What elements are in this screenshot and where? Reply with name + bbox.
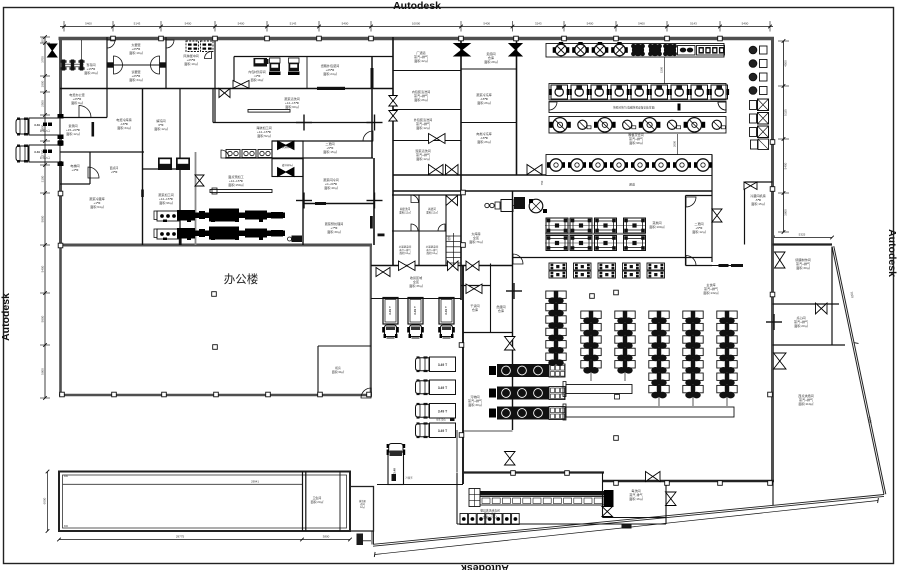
svg-text:5325: 5325 bbox=[799, 233, 806, 237]
svg-text:5800: 5800 bbox=[41, 315, 45, 322]
svg-text:29941: 29941 bbox=[251, 480, 259, 484]
svg-text:面积:26㎡: 面积:26㎡ bbox=[477, 100, 491, 105]
svg-text:面积:29㎡: 面积:29㎡ bbox=[84, 70, 98, 75]
svg-text:冷藏车: 冷藏车 bbox=[406, 476, 414, 480]
svg-text:1800: 1800 bbox=[41, 80, 45, 87]
svg-text:面积:20㎡: 面积:20㎡ bbox=[794, 323, 808, 328]
svg-text:3.49 T: 3.49 T bbox=[388, 306, 392, 315]
svg-text:面积:12㎡: 面积:12㎡ bbox=[66, 131, 80, 136]
svg-text:3700: 3700 bbox=[41, 56, 45, 63]
svg-text:面积:100㎡: 面积:100㎡ bbox=[649, 224, 665, 229]
svg-text:5400: 5400 bbox=[238, 22, 245, 26]
svg-text:5400: 5400 bbox=[638, 22, 645, 26]
svg-text:300: 300 bbox=[64, 525, 69, 528]
svg-text:面积:30㎡: 面积:30㎡ bbox=[468, 402, 482, 407]
svg-text:5400: 5400 bbox=[587, 22, 594, 26]
svg-text:5143: 5143 bbox=[690, 22, 697, 26]
svg-text:面积:12㎡: 面积:12㎡ bbox=[400, 251, 411, 255]
svg-text:通道: 通道 bbox=[629, 182, 635, 187]
svg-text:面积:26㎡: 面积:26㎡ bbox=[414, 97, 428, 102]
svg-text:面积:26㎡: 面积:26㎡ bbox=[477, 139, 491, 144]
svg-text:仓库: 仓库 bbox=[472, 307, 478, 312]
svg-text:+4℃: +4℃ bbox=[71, 168, 79, 172]
svg-text:面积:12㎡: 面积:12㎡ bbox=[154, 126, 168, 131]
svg-text:3900: 3900 bbox=[784, 209, 788, 216]
svg-text:3800: 3800 bbox=[323, 535, 330, 539]
svg-text:面积:15㎡: 面积:15㎡ bbox=[323, 149, 337, 154]
svg-text:面积:23㎡: 面积:23㎡ bbox=[311, 499, 324, 504]
svg-text:面积:30㎡: 面积:30㎡ bbox=[327, 229, 341, 234]
svg-text:面积:12㎡: 面积:12㎡ bbox=[426, 211, 438, 215]
svg-text:5400: 5400 bbox=[742, 22, 749, 26]
svg-text:两更洗间: 两更洗间 bbox=[400, 207, 411, 211]
svg-text:两更间: 两更间 bbox=[428, 207, 436, 211]
svg-text:5400: 5400 bbox=[784, 162, 788, 169]
svg-text:5400: 5400 bbox=[342, 22, 349, 26]
svg-text:面积:98㎡: 面积:98㎡ bbox=[629, 140, 643, 145]
svg-text:1500: 1500 bbox=[660, 67, 664, 73]
svg-text:面积:12㎡: 面积:12㎡ bbox=[692, 229, 706, 234]
svg-text:3.49 T: 3.49 T bbox=[438, 363, 447, 367]
svg-text:Autodesk: Autodesk bbox=[886, 229, 898, 277]
svg-text:卸货入口: 卸货入口 bbox=[40, 129, 51, 133]
svg-text:5400: 5400 bbox=[85, 22, 92, 26]
svg-text:3100: 3100 bbox=[41, 175, 45, 182]
svg-text:蒸煮间蒸汽(电磁蒸煮设备安装位置): 蒸煮间蒸汽(电磁蒸煮设备安装位置) bbox=[613, 105, 655, 109]
svg-text:5143: 5143 bbox=[134, 22, 141, 26]
svg-text:5325: 5325 bbox=[784, 109, 788, 116]
svg-text:3.49: 3.49 bbox=[34, 123, 40, 127]
svg-text:面积:110㎡: 面积:110㎡ bbox=[798, 401, 814, 406]
svg-text:面积:34㎡: 面积:34㎡ bbox=[129, 77, 143, 82]
svg-text:面积:174㎡: 面积:174㎡ bbox=[483, 516, 497, 520]
svg-text:风淋间3㎡: 风淋间3㎡ bbox=[282, 145, 294, 149]
svg-text:面积:12㎡: 面积:12㎡ bbox=[416, 156, 430, 161]
svg-text:楼梯: 楼梯 bbox=[447, 235, 451, 241]
svg-text:面积:10㎡: 面积:10㎡ bbox=[184, 61, 198, 66]
svg-text:面积:15㎡: 面积:15㎡ bbox=[751, 201, 765, 206]
svg-text:面积:132㎡: 面积:132㎡ bbox=[703, 290, 719, 295]
svg-text:29775: 29775 bbox=[176, 535, 185, 539]
svg-text:3.49 T: 3.49 T bbox=[438, 429, 447, 433]
svg-text:2500: 2500 bbox=[41, 100, 45, 107]
svg-text:面积:12㎡: 面积:12㎡ bbox=[427, 251, 438, 255]
svg-text:5400: 5400 bbox=[185, 22, 192, 26]
svg-text:面积:42㎡: 面积:42㎡ bbox=[414, 58, 428, 63]
svg-text:面积:40㎡: 面积:40㎡ bbox=[324, 185, 338, 190]
svg-text:Autodesk: Autodesk bbox=[0, 293, 12, 341]
svg-text:面积:36㎡: 面积:36㎡ bbox=[409, 283, 423, 288]
svg-text:+5℃: +5℃ bbox=[111, 170, 118, 174]
svg-text:300: 300 bbox=[64, 475, 69, 478]
svg-text:面积:52㎡: 面积:52㎡ bbox=[257, 133, 271, 138]
svg-text:面积:19㎡: 面积:19㎡ bbox=[251, 77, 264, 82]
svg-text:面积:30㎡: 面积:30㎡ bbox=[796, 265, 810, 270]
svg-text:3.49 T: 3.49 T bbox=[444, 306, 448, 315]
svg-text:面积:24㎡: 面积:24㎡ bbox=[323, 71, 337, 76]
svg-text:5400: 5400 bbox=[483, 22, 490, 26]
svg-text:面积:76㎡: 面积:76㎡ bbox=[469, 239, 483, 244]
svg-text:面积:9㎡: 面积:9㎡ bbox=[71, 100, 84, 105]
svg-text:3.49: 3.49 bbox=[393, 468, 397, 474]
svg-text:面积:64㎡: 面积:64㎡ bbox=[90, 204, 104, 209]
svg-text:5800: 5800 bbox=[41, 215, 45, 222]
svg-text:办公楼: 办公楼 bbox=[224, 272, 259, 286]
svg-text:面积:16㎡: 面积:16㎡ bbox=[629, 496, 643, 501]
svg-text:Autodesk: Autodesk bbox=[461, 562, 509, 570]
svg-text:面积:96㎡: 面积:96㎡ bbox=[159, 200, 173, 205]
svg-text:面积:34㎡: 面积:34㎡ bbox=[117, 125, 131, 130]
svg-text:3.49 T: 3.49 T bbox=[438, 410, 447, 414]
svg-text:面积:150㎡: 面积:150㎡ bbox=[228, 182, 244, 187]
svg-text:缓冲间3㎡: 缓冲间3㎡ bbox=[282, 163, 294, 167]
svg-text:3.49 T: 3.49 T bbox=[438, 386, 447, 390]
svg-text:6000: 6000 bbox=[43, 497, 47, 504]
svg-text:面积:28㎡: 面积:28㎡ bbox=[484, 59, 498, 64]
svg-text:3243: 3243 bbox=[535, 22, 542, 26]
svg-text:10000: 10000 bbox=[412, 22, 421, 26]
svg-text:5400: 5400 bbox=[41, 265, 45, 272]
svg-text:3.49: 3.49 bbox=[34, 150, 40, 154]
svg-text:3.49 T: 3.49 T bbox=[413, 306, 417, 315]
svg-text:5900: 5900 bbox=[41, 368, 45, 375]
svg-text:2000: 2000 bbox=[673, 141, 677, 147]
svg-text:750: 750 bbox=[540, 180, 544, 185]
svg-text:面积:19㎡: 面积:19㎡ bbox=[129, 50, 143, 55]
svg-text:600: 600 bbox=[41, 37, 45, 42]
svg-text:面积:60㎡: 面积:60㎡ bbox=[285, 104, 299, 109]
svg-text:面积:12㎡: 面积:12㎡ bbox=[399, 211, 411, 215]
svg-text:5143: 5143 bbox=[290, 22, 297, 26]
svg-text:4500: 4500 bbox=[784, 60, 788, 67]
svg-text:仓库: 仓库 bbox=[498, 308, 504, 313]
svg-text:卸货入口: 卸货入口 bbox=[40, 156, 51, 160]
svg-text:面积:30㎡: 面积:30㎡ bbox=[332, 370, 344, 374]
svg-text:Autodesk: Autodesk bbox=[393, 0, 441, 12]
svg-text:面积:12㎡: 面积:12㎡ bbox=[416, 125, 430, 130]
